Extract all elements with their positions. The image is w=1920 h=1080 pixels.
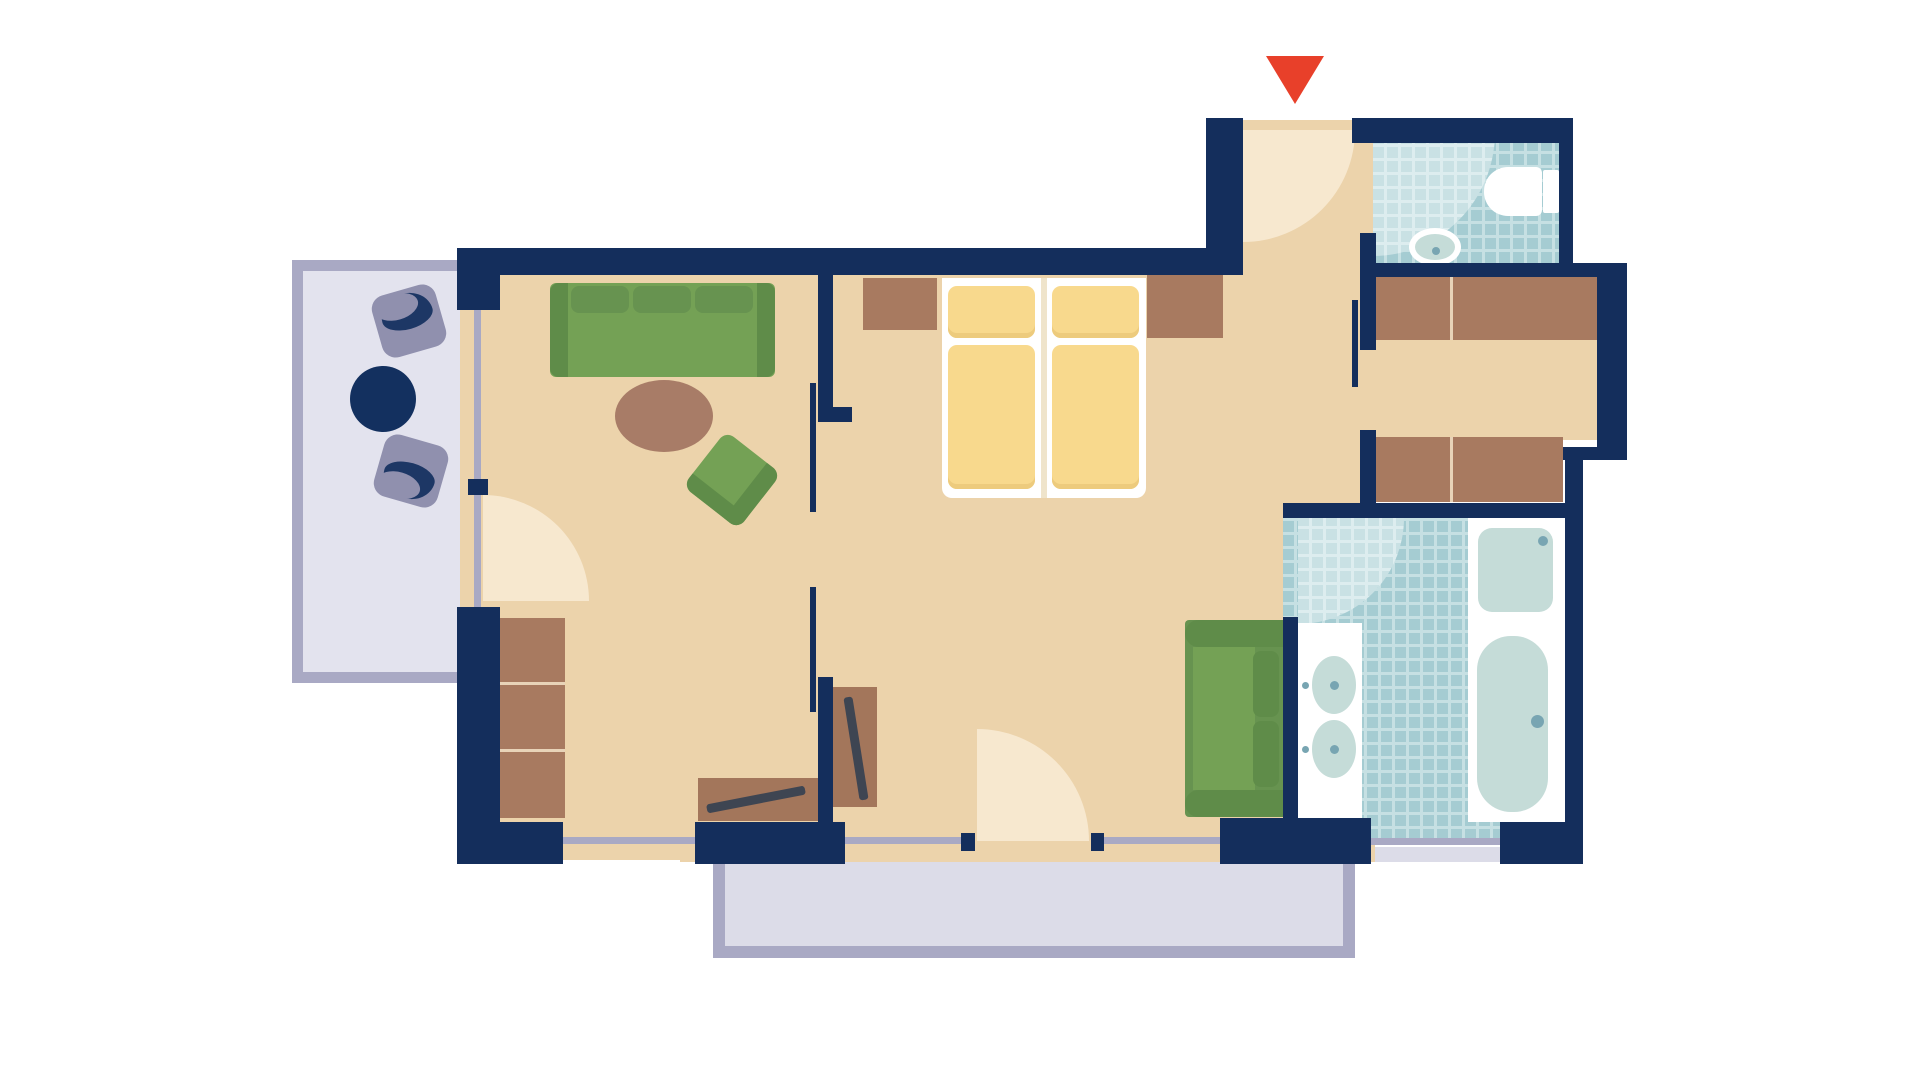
bathtub <box>1477 636 1548 812</box>
wall-right-upper <box>1597 263 1627 460</box>
floor-plan <box>0 0 1920 1080</box>
double-vanity <box>1298 623 1362 822</box>
entrance-arrow <box>1266 56 1324 104</box>
wardrobe-lower <box>1375 437 1563 502</box>
bedroom-window-left <box>845 837 961 844</box>
sofa-cushion <box>571 286 629 313</box>
dressing-corridor-floor <box>1355 335 1605 440</box>
living-window-bottom <box>563 837 695 844</box>
bedroom-window-right <box>1104 837 1220 844</box>
wall-above-bathroom <box>1283 503 1583 518</box>
wall-partition-bottom <box>818 677 833 864</box>
sofa-cushion <box>695 286 753 313</box>
duvet-right <box>1052 345 1139 489</box>
terrace-door-jamb-right <box>1091 833 1104 851</box>
toilet-tank <box>1543 170 1559 213</box>
sliding-door-line-lower <box>810 587 816 712</box>
wall-under-wc <box>1360 263 1627 277</box>
balcony-round-table <box>350 366 416 432</box>
loveseat <box>1185 620 1283 817</box>
wall-entrance-left <box>1206 118 1243 275</box>
terrace <box>713 848 1355 958</box>
balcony-door-jamb <box>468 479 488 495</box>
wall-partition-top <box>818 273 833 422</box>
sofa-cushion <box>633 286 691 313</box>
wall-dressing-left-lower <box>1360 430 1376 503</box>
wardrobe-upper <box>1375 277 1597 340</box>
bathroom-window-sill <box>1371 847 1500 862</box>
shelf-unit <box>500 618 565 818</box>
bathroom-window <box>1371 838 1500 845</box>
pillow-right <box>1052 286 1139 338</box>
sliding-door-line-upper <box>810 383 816 512</box>
nightstand-right <box>1147 275 1223 338</box>
wall-dressing-left-upper <box>1360 233 1376 350</box>
sliding-door-line-dressing <box>1352 300 1358 387</box>
shower-tray <box>1478 528 1553 612</box>
wall-wc-right <box>1559 118 1573 277</box>
living-window-left <box>474 310 481 607</box>
pillow-left <box>948 286 1035 338</box>
wall-top <box>457 248 1243 275</box>
wall-wc-top <box>1352 118 1573 143</box>
wall-bathroom-left <box>1283 617 1298 864</box>
wall-top-left-corner <box>457 248 500 310</box>
sofa-three-seat <box>550 283 775 377</box>
terrace-door-jamb-left <box>961 833 975 851</box>
loveseat-cushion <box>1253 721 1279 787</box>
wall-partition-foot <box>818 407 852 422</box>
twin-beds <box>942 278 1146 498</box>
wall-bottom-left-arm <box>457 822 563 864</box>
nightstand-left <box>863 278 937 330</box>
duvet-left <box>948 345 1035 489</box>
loveseat-cushion <box>1253 651 1279 717</box>
coffee-table-oval <box>615 380 713 452</box>
wc-sink <box>1409 228 1461 266</box>
toilet <box>1484 167 1542 216</box>
